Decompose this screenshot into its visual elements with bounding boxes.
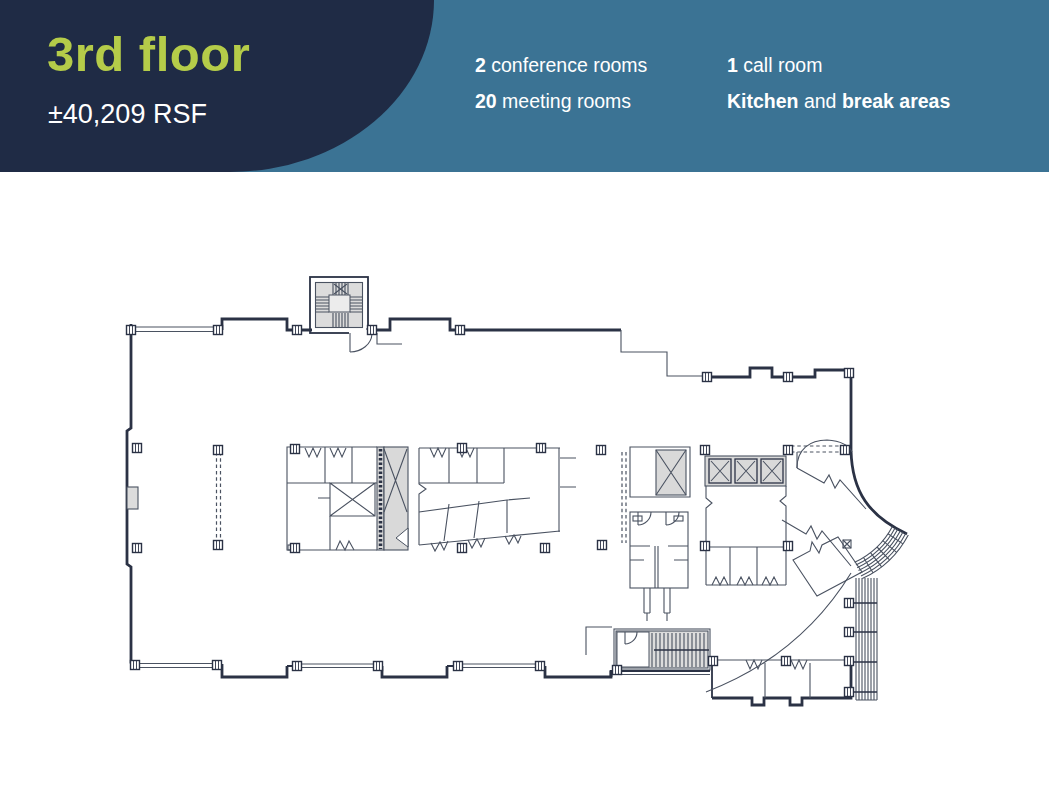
stat-meeting-rooms: 20 meeting rooms <box>475 83 647 119</box>
stairwell-bottom <box>611 629 710 677</box>
stats-column-left: 2 conference rooms 20 meeting rooms <box>475 47 647 119</box>
core-shaft-restrooms <box>622 447 690 621</box>
page-title: 3rd floor <box>47 30 250 79</box>
stat-call-count: 1 <box>727 54 738 76</box>
floor-plan <box>0 172 1049 808</box>
stat-call-room: 1 call room <box>727 47 950 83</box>
restrooms <box>630 512 688 588</box>
wall-pilaster <box>127 487 138 509</box>
amenity-and: and <box>799 90 842 112</box>
floor-plan-svg <box>0 172 1049 808</box>
amenity-kitchen: Kitchen <box>727 90 799 112</box>
amenity-break-areas: break areas <box>842 90 950 112</box>
structural-columns <box>127 326 854 697</box>
floor-area-rsf: ±40,209 RSF <box>48 101 207 128</box>
hatched-facade-strip <box>853 578 877 700</box>
atrium-arc <box>706 573 851 692</box>
stat-conference-rooms: 2 conference rooms <box>475 47 647 83</box>
meeting-block-left <box>287 447 408 550</box>
page: 2 conference rooms 20 meeting rooms 1 ca… <box>0 0 1049 808</box>
meeting-block-middle <box>419 448 560 551</box>
stat-conference-label: conference rooms <box>486 54 648 76</box>
door-swing-arc <box>350 334 372 352</box>
demising-dashed-line <box>217 452 221 543</box>
stat-meeting-label: meeting rooms <box>497 90 631 112</box>
stat-conference-count: 2 <box>475 54 486 76</box>
elevator-bank <box>705 456 786 585</box>
tilted-room <box>793 537 862 596</box>
stat-meeting-count: 20 <box>475 90 497 112</box>
stats-column-right: 1 call room Kitchen and break areas <box>727 47 950 119</box>
stairwell-top <box>310 277 372 352</box>
curved-facade-fan <box>855 527 909 579</box>
window-walls <box>133 327 540 668</box>
stat-amenities: Kitchen and break areas <box>727 83 950 119</box>
header-banner: 2 conference rooms 20 meeting rooms 1 ca… <box>0 0 1049 172</box>
stat-call-label: call room <box>738 54 823 76</box>
